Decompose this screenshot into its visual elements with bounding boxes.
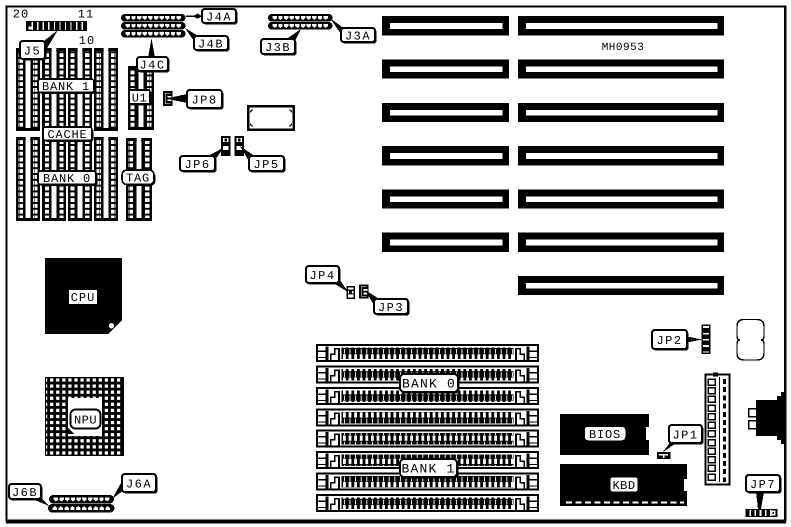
svg-text:BANK 0: BANK 0: [402, 377, 456, 392]
svg-text:JP5: JP5: [253, 158, 279, 172]
svg-text:JP2: JP2: [656, 334, 682, 348]
svg-text:J5: J5: [24, 44, 41, 58]
svg-text:J6A: J6A: [126, 477, 152, 491]
svg-text:KBD: KBD: [612, 479, 635, 493]
svg-text:MH0953: MH0953: [602, 42, 645, 54]
svg-text:JP6: JP6: [184, 158, 210, 172]
svg-text:10: 10: [79, 34, 95, 48]
svg-text:J4B: J4B: [198, 37, 224, 51]
svg-text:J4A: J4A: [206, 10, 232, 24]
svg-text:BANK 1: BANK 1: [42, 80, 90, 94]
svg-text:20: 20: [13, 8, 29, 22]
svg-text:11: 11: [78, 8, 94, 22]
svg-text:J4C: J4C: [139, 58, 165, 72]
svg-text:CACHE: CACHE: [47, 128, 87, 142]
svg-text:J6B: J6B: [12, 486, 38, 500]
svg-text:JP7: JP7: [750, 478, 776, 492]
svg-text:JP3: JP3: [378, 301, 404, 315]
svg-text:J3A: J3A: [345, 29, 371, 43]
svg-text:JP8: JP8: [191, 93, 217, 107]
svg-text:JP1: JP1: [672, 428, 698, 442]
svg-text:JP4: JP4: [309, 269, 335, 283]
svg-text:NPU: NPU: [74, 414, 97, 428]
svg-text:CPU: CPU: [71, 291, 96, 305]
svg-text:U1: U1: [132, 91, 147, 105]
svg-text:BANK 1: BANK 1: [401, 462, 455, 477]
svg-text:BANK 0: BANK 0: [43, 172, 91, 186]
svg-text:TAG: TAG: [126, 172, 150, 186]
svg-text:J3B: J3B: [265, 41, 291, 55]
svg-text:BIOS: BIOS: [589, 428, 621, 442]
